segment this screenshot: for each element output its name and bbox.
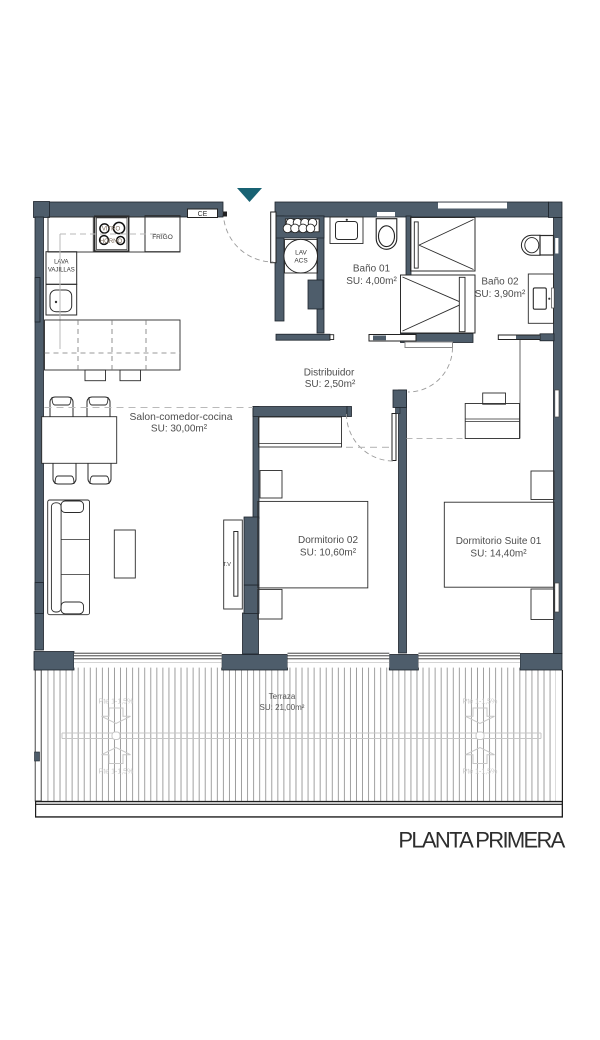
svg-text:SU: 3,90m²: SU: 3,90m² <box>475 289 526 300</box>
svg-text:CE: CE <box>198 211 208 218</box>
svg-text:Pte 1-1,5%: Pte 1-1,5% <box>99 699 134 706</box>
svg-text:Dormitorio 02: Dormitorio 02 <box>298 535 358 546</box>
svg-text:Terraza: Terraza <box>269 692 296 701</box>
svg-text:PLANTA PRIMERA: PLANTA PRIMERA <box>398 828 565 853</box>
svg-text:LAV: LAV <box>295 250 307 257</box>
svg-text:SU: 2,50m²: SU: 2,50m² <box>305 379 356 390</box>
svg-text:Pte 1-1,5%: Pte 1-1,5% <box>463 769 498 776</box>
svg-text:Pte 1-1,5%: Pte 1-1,5% <box>99 769 134 776</box>
svg-text:Pte 1-1,5%: Pte 1-1,5% <box>463 699 498 706</box>
svg-text:SU: 30,00m²: SU: 30,00m² <box>151 424 208 435</box>
svg-text:ACS: ACS <box>294 258 308 265</box>
svg-text:Salon-comedor-cocina: Salon-comedor-cocina <box>129 412 232 423</box>
svg-text:T.V: T.V <box>223 562 231 568</box>
svg-text:FRIGO: FRIGO <box>152 234 173 241</box>
svg-text:Baño 02: Baño 02 <box>481 277 519 288</box>
svg-text:HORNO: HORNO <box>100 239 123 245</box>
svg-text:SU: 10,60m²: SU: 10,60m² <box>300 548 357 559</box>
svg-text:LAVA: LAVA <box>54 260 68 266</box>
svg-text:VITRO: VITRO <box>102 227 121 233</box>
svg-text:Dormitorio Suite 01: Dormitorio Suite 01 <box>456 536 542 547</box>
svg-text:SU: 14,40m²: SU: 14,40m² <box>470 549 527 560</box>
svg-text:SU: 21,00m²: SU: 21,00m² <box>260 703 305 712</box>
svg-text:Baño 01: Baño 01 <box>353 264 391 275</box>
svg-text:VAJILLAS: VAJILLAS <box>48 268 75 274</box>
svg-text:SU: 4,00m²: SU: 4,00m² <box>346 276 397 287</box>
svg-text:Distribuidor: Distribuidor <box>304 368 355 379</box>
